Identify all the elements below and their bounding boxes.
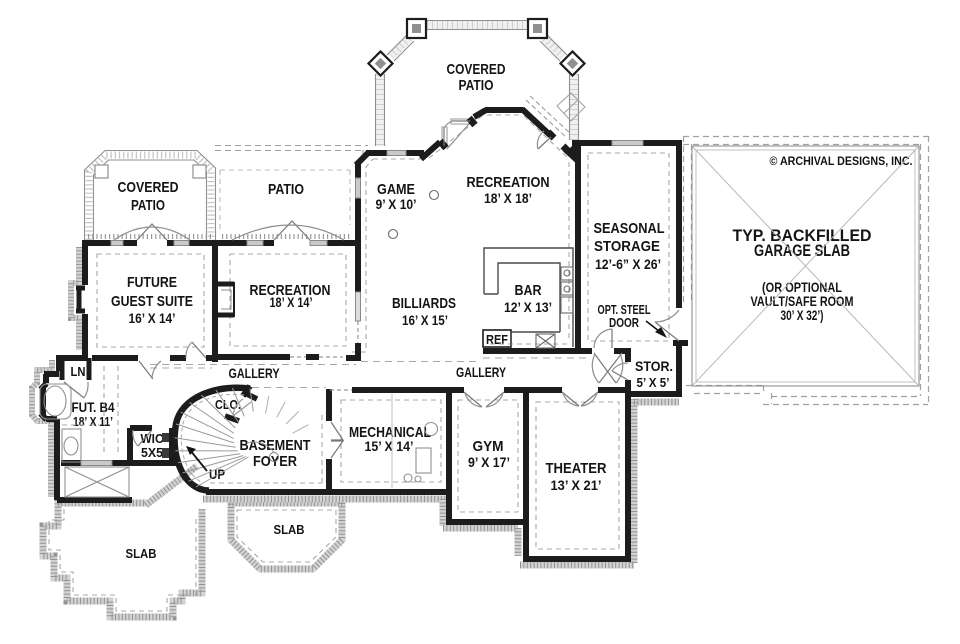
svg-text:GALLERY: GALLERY (229, 365, 281, 381)
svg-text:GALLERY: GALLERY (456, 364, 506, 380)
svg-text:COVERED: COVERED (447, 61, 506, 78)
svg-text:18’ X 14’: 18’ X 14’ (270, 294, 313, 310)
svg-text:BASEMENT: BASEMENT (240, 437, 311, 454)
svg-text:12’ X 13’: 12’ X 13’ (504, 299, 552, 315)
svg-text:18’ X 18’: 18’ X 18’ (484, 190, 532, 206)
svg-text:THEATER: THEATER (546, 460, 607, 477)
svg-text:5X5: 5X5 (141, 445, 163, 460)
svg-text:COVERED: COVERED (118, 179, 179, 196)
svg-text:30’ X 32’): 30’ X 32’) (781, 307, 824, 323)
svg-text:FUTURE: FUTURE (127, 274, 177, 291)
svg-text:5’ X 5’: 5’ X 5’ (637, 375, 670, 390)
svg-text:SLAB: SLAB (126, 546, 157, 561)
svg-text:UP: UP (209, 466, 225, 482)
svg-text:12’-6” X 26’: 12’-6” X 26’ (595, 256, 661, 272)
svg-text:PATIO: PATIO (131, 197, 165, 214)
svg-text:9’ X 17’: 9’ X 17’ (468, 454, 510, 470)
svg-text:DOOR: DOOR (609, 315, 639, 330)
svg-text:16’ X 14’: 16’ X 14’ (129, 310, 176, 326)
svg-text:STOR.: STOR. (635, 358, 673, 374)
svg-text:PATIO: PATIO (268, 181, 304, 198)
svg-text:GYM: GYM (473, 438, 504, 455)
svg-text:9’ X 10’: 9’ X 10’ (376, 196, 417, 212)
svg-text:13’ X 21’: 13’ X 21’ (551, 477, 602, 493)
svg-text:BILLIARDS: BILLIARDS (392, 295, 456, 312)
svg-text:18’ X 11’: 18’ X 11’ (73, 414, 113, 429)
svg-text:SLAB: SLAB (274, 522, 305, 537)
svg-text:PATIO: PATIO (459, 77, 494, 94)
svg-text:FUT. B4: FUT. B4 (72, 399, 115, 415)
svg-text:15’ X 14’: 15’ X 14’ (365, 438, 414, 454)
svg-text:SEASONAL: SEASONAL (594, 220, 665, 237)
svg-text:GUEST SUITE: GUEST SUITE (111, 293, 193, 310)
svg-text:REF: REF (486, 332, 508, 347)
svg-text:STORAGE: STORAGE (594, 238, 660, 255)
svg-text:© ARCHIVAL DESIGNS, INC.: © ARCHIVAL DESIGNS, INC. (770, 154, 913, 168)
svg-text:BAR: BAR (515, 282, 542, 299)
svg-text:GARAGE SLAB: GARAGE SLAB (754, 242, 850, 260)
svg-text:LN: LN (71, 364, 86, 379)
svg-text:16’ X 15’: 16’ X 15’ (402, 312, 448, 328)
svg-text:RECREATION: RECREATION (467, 174, 550, 191)
